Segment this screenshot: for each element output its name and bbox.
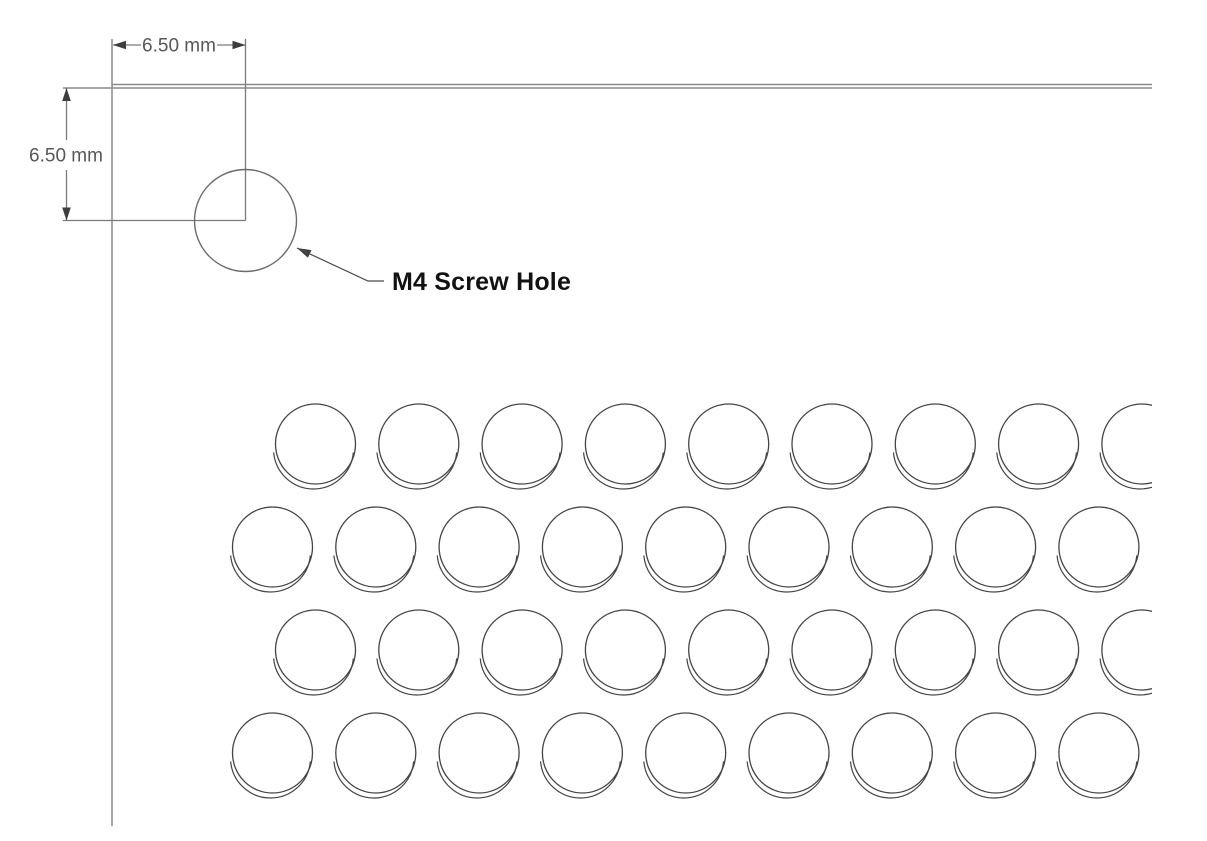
perforation-hole xyxy=(379,610,459,690)
perforation-hole xyxy=(1059,507,1139,587)
perforation-hole xyxy=(482,404,562,484)
perforation-hole xyxy=(336,713,416,793)
perforation-hole xyxy=(276,404,356,484)
perforation-hole xyxy=(749,713,829,793)
perforation-hole xyxy=(379,404,459,484)
perforation-hole xyxy=(439,713,519,793)
perforation-hole xyxy=(956,507,1036,587)
perforation-hole xyxy=(999,404,1079,484)
perforation-hole xyxy=(1102,404,1182,484)
screw-hole-label: M4 Screw Hole xyxy=(392,268,571,296)
technical-drawing: 6.50 mm 6.50 mm M4 Screw Hole xyxy=(0,0,1207,841)
arrowhead-icon xyxy=(113,41,126,50)
perforation-hole xyxy=(542,713,622,793)
perforation-hole xyxy=(233,507,313,587)
perforation-hole xyxy=(585,404,665,484)
perforation-hole xyxy=(999,610,1079,690)
perforation-hole xyxy=(689,610,769,690)
perforation-hole xyxy=(336,507,416,587)
perforation-hole xyxy=(749,507,829,587)
perforation-hole xyxy=(439,507,519,587)
arrowhead-icon xyxy=(62,88,71,101)
perforation-hole xyxy=(542,507,622,587)
drawing-canvas: 6.50 mm 6.50 mm M4 Screw Hole xyxy=(0,0,1207,841)
perforation-hole xyxy=(956,713,1036,793)
perforation-hole xyxy=(585,610,665,690)
perforation-grid xyxy=(231,404,1182,798)
dimension-horizontal: 6.50 mm xyxy=(113,36,246,57)
horizontal-dimension-text: 6.50 mm xyxy=(142,36,216,57)
dimension-vertical: 6.50 mm xyxy=(29,88,103,221)
perforation-hole xyxy=(646,713,726,793)
perforation-hole xyxy=(276,610,356,690)
perforation-hole xyxy=(1059,713,1139,793)
perforation-hole xyxy=(792,610,872,690)
arrowhead-icon xyxy=(233,41,246,50)
extension-lines xyxy=(63,39,246,221)
perforation-hole xyxy=(895,404,975,484)
perforation-hole xyxy=(852,713,932,793)
perforation-hole xyxy=(792,404,872,484)
leader-callout: M4 Screw Hole xyxy=(297,248,571,296)
vertical-dimension-text: 6.50 mm xyxy=(29,146,103,167)
perforation-hole xyxy=(646,507,726,587)
arrowhead-icon xyxy=(62,208,71,221)
perforation-hole xyxy=(1102,610,1182,690)
perforation-hole xyxy=(895,610,975,690)
perforation-hole xyxy=(233,713,313,793)
perforation-hole xyxy=(689,404,769,484)
perforation-hole xyxy=(482,610,562,690)
panel-edges xyxy=(63,39,1152,826)
perforation-hole xyxy=(852,507,932,587)
